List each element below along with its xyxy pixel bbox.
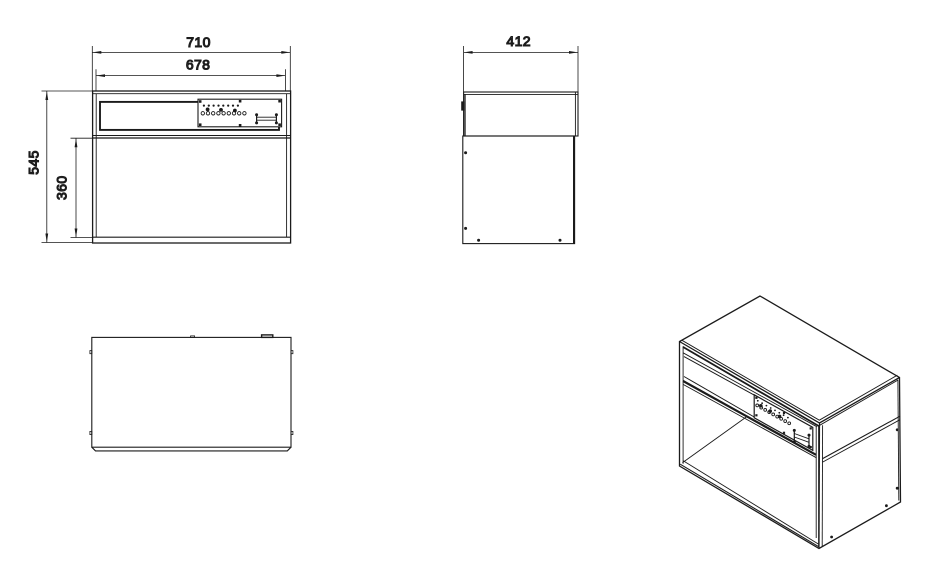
svg-text:678: 678 (186, 57, 211, 73)
svg-text:710: 710 (186, 34, 211, 50)
svg-text:545: 545 (26, 150, 42, 175)
svg-text:360: 360 (53, 175, 69, 200)
svg-text:412: 412 (506, 33, 531, 49)
